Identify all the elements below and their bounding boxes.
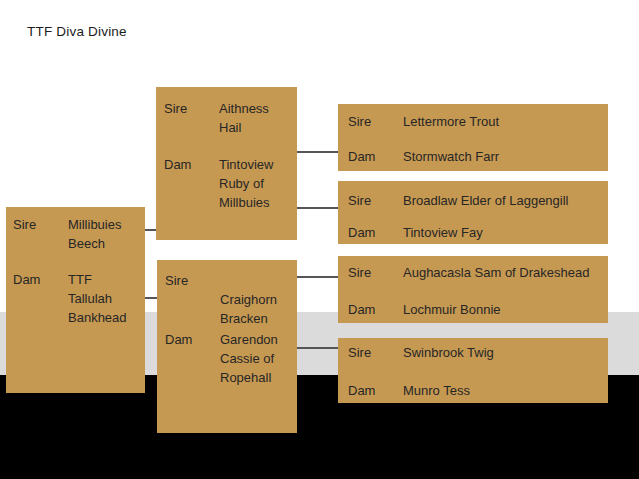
dam-label: Dam <box>13 270 68 289</box>
sire-label: Sire <box>164 99 219 118</box>
pedigree-box-dam-grandparents-2: Sire Swinbrook Twig Dam Munro Tess <box>338 338 608 403</box>
sire-entry: Sire Millibuies Beech <box>13 215 143 253</box>
name-line: Stormwatch Farr <box>403 147 608 166</box>
dam-label: Dam <box>348 147 403 166</box>
dam-label: Dam <box>348 300 403 319</box>
name-line: Tintoview <box>219 155 295 174</box>
name-line: Munro Tess <box>403 381 608 400</box>
name-line: Swinbrook Twig <box>403 343 608 362</box>
pedigree-box-parents: Sire Millibuies Beech Dam TTF Tallulah B… <box>6 207 145 393</box>
name-line: Craighorn <box>220 290 295 309</box>
dam-entry: Dam Lochmuir Bonnie <box>348 300 608 319</box>
sire-label: Sire <box>13 215 68 234</box>
name-line: Lettermore Trout <box>403 112 608 131</box>
pedigree-box-dam-parents: Sire Craighorn Bracken Dam Garendon Cass… <box>157 260 297 433</box>
name-line: Broadlaw Elder of Laggengill <box>403 191 608 210</box>
pedigree-slide: TTF Diva Divine Sire Millibuies Beech Da… <box>0 0 639 479</box>
dam-name: Tintoview Ruby of Millbuies <box>219 155 295 212</box>
dam-entry: Dam Garendon Cassie of Ropehall <box>165 330 295 387</box>
dam-entry: Dam Tintoview Ruby of Millbuies <box>164 155 295 212</box>
sire-label: Sire <box>165 271 220 290</box>
connector-dam-parents-to-grandparents-1 <box>297 276 338 278</box>
sire-label: Sire <box>348 112 403 131</box>
sire-entry: Sire Aithness Hail <box>164 99 295 137</box>
name-line <box>220 271 295 290</box>
connector-sire-parents-to-grandparents-2 <box>297 207 338 209</box>
name-line: Ruby of <box>219 174 295 193</box>
dam-entry: Dam Munro Tess <box>348 381 608 400</box>
name-line: Aithness <box>219 99 295 118</box>
name-line: Tallulah <box>68 289 143 308</box>
name-line: Aughacasla Sam of Drakeshead <box>403 263 608 282</box>
sire-label: Sire <box>348 191 403 210</box>
sire-label: Sire <box>348 263 403 282</box>
pedigree-box-sire-grandparents-2: Sire Broadlaw Elder of Laggengill Dam Ti… <box>338 181 608 244</box>
pedigree-box-sire-grandparents-1: Sire Lettermore Trout Dam Stormwatch Far… <box>338 104 608 171</box>
name-line: Bankhead <box>68 308 143 327</box>
sire-entry: Sire Swinbrook Twig <box>348 343 608 362</box>
name-line: Garendon <box>220 330 295 349</box>
dam-label: Dam <box>165 330 220 349</box>
name-line: Cassie of <box>220 349 295 368</box>
dam-name: Garendon Cassie of Ropehall <box>220 330 295 387</box>
name-line: Tintoview Fay <box>403 223 608 242</box>
dam-label: Dam <box>164 155 219 174</box>
page-title: TTF Diva Divine <box>27 24 127 39</box>
sire-label: Sire <box>348 343 403 362</box>
sire-entry: Sire Broadlaw Elder of Laggengill <box>348 191 608 210</box>
name-line: Millibuies <box>68 215 143 234</box>
name-line: Beech <box>68 234 143 253</box>
connector-sire-parents-to-grandparents-1 <box>297 151 338 153</box>
dam-label: Dam <box>348 381 403 400</box>
sire-name: Craighorn Bracken <box>220 271 295 328</box>
sire-name: Millibuies Beech <box>68 215 143 253</box>
sire-entry: Sire Lettermore Trout <box>348 112 608 131</box>
name-line: Bracken <box>220 309 295 328</box>
name-line: Hail <box>219 118 295 137</box>
connector-dam-parents-to-grandparents-2 <box>297 347 338 349</box>
connector-parents-to-dam-parents <box>145 297 157 299</box>
sire-entry: Sire Aughacasla Sam of Drakeshead <box>348 263 608 282</box>
sire-name: Aithness Hail <box>219 99 295 137</box>
connector-parents-to-sire-parents <box>145 229 156 231</box>
dam-entry: Dam Tintoview Fay <box>348 223 608 242</box>
name-line: Millbuies <box>219 193 295 212</box>
pedigree-box-dam-grandparents-1: Sire Aughacasla Sam of Drakeshead Dam Lo… <box>338 256 608 323</box>
dam-entry: Dam Stormwatch Farr <box>348 147 608 166</box>
name-line: Lochmuir Bonnie <box>403 300 608 319</box>
name-line: Ropehall <box>220 368 295 387</box>
pedigree-box-sire-parents: Sire Aithness Hail Dam Tintoview Ruby of… <box>156 87 297 240</box>
dam-name: TTF Tallulah Bankhead <box>68 270 143 327</box>
name-line: TTF <box>68 270 143 289</box>
dam-label: Dam <box>348 223 403 242</box>
dam-entry: Dam TTF Tallulah Bankhead <box>13 270 143 327</box>
sire-entry: Sire Craighorn Bracken <box>165 271 295 328</box>
